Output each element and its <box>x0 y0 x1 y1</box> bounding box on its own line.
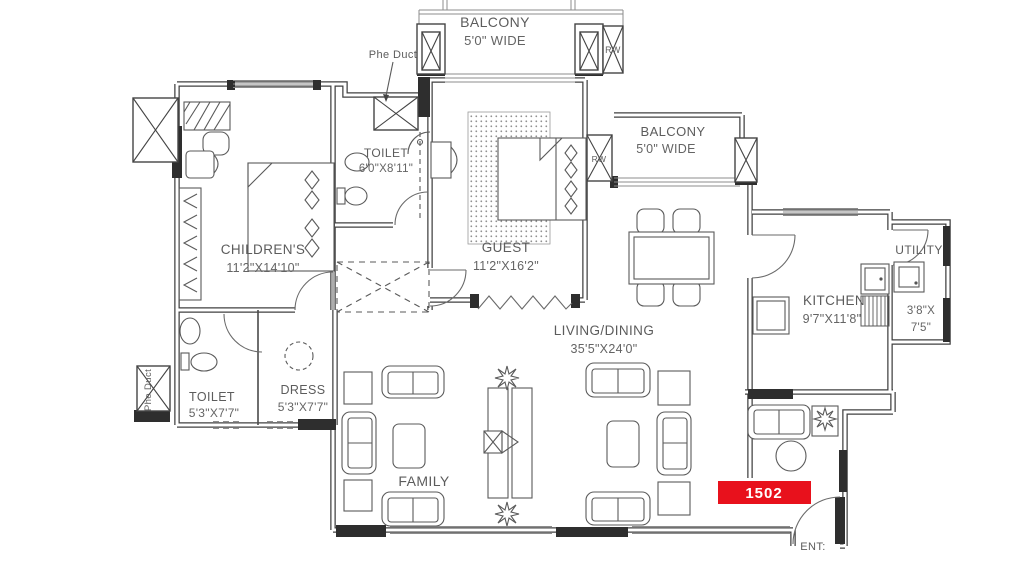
balcony-pillar-right-icon <box>575 24 603 74</box>
entry-label: ENT: <box>800 541 825 553</box>
balcony-top-label: BALCONY <box>460 14 530 30</box>
sofa <box>657 412 691 475</box>
foyer-bench <box>748 405 810 439</box>
guest-bed <box>498 138 586 220</box>
sofa <box>382 366 444 398</box>
utility-dim-1: 3'8"X <box>907 305 935 317</box>
guest-dim: 11'2"X16'2" <box>473 259 539 273</box>
rw-shaft-label: RW <box>592 154 607 164</box>
balcony-right-dim: 5'0" WIDE <box>636 142 696 156</box>
balcony-right-label: BALCONY <box>641 124 706 139</box>
kitchen-dim: 9'7"X11'8" <box>803 312 862 326</box>
bedside-table <box>186 151 218 178</box>
childrens-dim: 11'2"X14'10" <box>226 261 299 275</box>
kitchen-label: KITCHEN <box>803 293 865 308</box>
coffee-table <box>607 421 639 467</box>
childrens-label: CHILDREN'S <box>221 242 306 257</box>
coffee-table <box>393 424 425 468</box>
floor-plan-canvas: RW RW <box>0 0 1026 588</box>
utility-dim-2: 7'5" <box>911 322 931 334</box>
wc-icon <box>337 187 367 205</box>
unit-number-badge: 1502 <box>718 481 811 504</box>
foyer-furniture <box>748 405 838 471</box>
dress-label: DRESS <box>280 383 325 397</box>
sofa <box>586 363 650 397</box>
balcony-top-dim: 5'0" WIDE <box>464 33 526 48</box>
sofa <box>342 412 376 474</box>
living-dining-dim: 35'5"X24'0" <box>571 342 638 356</box>
phe-duct-left-label: Phe Duct <box>143 369 154 411</box>
dining-table <box>629 232 714 284</box>
floor-plan-page: RW RW <box>0 0 1026 588</box>
living-sofa-set <box>586 363 691 525</box>
foyer-round-table <box>776 441 806 471</box>
kitchen-door-arc <box>752 235 795 278</box>
foyer-plant-icon <box>812 406 838 436</box>
folding-door-icon <box>478 296 572 309</box>
living-dining-label: LIVING/DINING <box>554 323 654 338</box>
shower-icon <box>408 132 430 154</box>
wardrobe <box>179 188 201 300</box>
family-sofa-set <box>342 366 444 526</box>
sofa <box>586 492 650 525</box>
side-table <box>344 372 372 404</box>
toilet-bottom-fixtures <box>180 318 217 371</box>
duct-shaft-icon <box>133 98 178 162</box>
balcony-pillar-left-icon <box>417 24 445 74</box>
phe-duct-top-label: Phe Duct <box>369 49 417 61</box>
toilet-bottom-label: TOILET <box>189 390 235 404</box>
dining-chair <box>637 209 664 234</box>
washing-machine <box>894 262 924 292</box>
wc-icon <box>181 353 217 371</box>
plant-icon <box>495 366 519 390</box>
kitchen-sink <box>861 264 889 326</box>
dress-stool <box>285 342 313 370</box>
childrens-door-arc <box>295 272 333 310</box>
kitchen-counter <box>753 297 789 334</box>
dining-chair <box>673 281 700 306</box>
rw-shaft-top-label: RW <box>605 45 621 55</box>
guest-vanity <box>431 142 457 178</box>
toilet-bottom-dim: 5'3"X7'7" <box>189 406 240 420</box>
dress-dim: 5'3"X7'7" <box>278 400 329 414</box>
unit-number: 1502 <box>745 485 782 502</box>
side-table <box>658 482 690 515</box>
corridor-hatch <box>337 262 429 312</box>
dining-set <box>629 209 714 306</box>
washbasin-icon <box>180 318 200 344</box>
rw-shaft-icon: RW <box>587 135 612 181</box>
rw-shaft-top-icon: RW <box>603 26 623 73</box>
toilet-top-door-arc <box>395 192 428 225</box>
dining-chair <box>637 281 664 306</box>
tv-unit <box>484 366 532 526</box>
plant-icon <box>495 502 519 526</box>
toilet-top-dim: 6'0"X8'11" <box>359 163 413 175</box>
toilet-bottom-door-arc <box>224 314 262 352</box>
balcony-right-pillar-icon <box>735 138 757 182</box>
utility-label: UTILITY <box>895 243 942 257</box>
family-label: FAMILY <box>398 473 449 489</box>
guest-furniture <box>431 112 586 244</box>
phe-duct-shaft-top-icon <box>374 97 418 130</box>
toilet-top-label: TOILET <box>364 146 408 160</box>
guest-label: GUEST <box>482 240 531 255</box>
sofa <box>382 492 444 526</box>
side-table <box>344 480 372 511</box>
entry-door-arc <box>793 497 840 544</box>
side-table <box>658 371 690 405</box>
study-desk <box>184 102 230 155</box>
dining-chair <box>673 209 700 234</box>
